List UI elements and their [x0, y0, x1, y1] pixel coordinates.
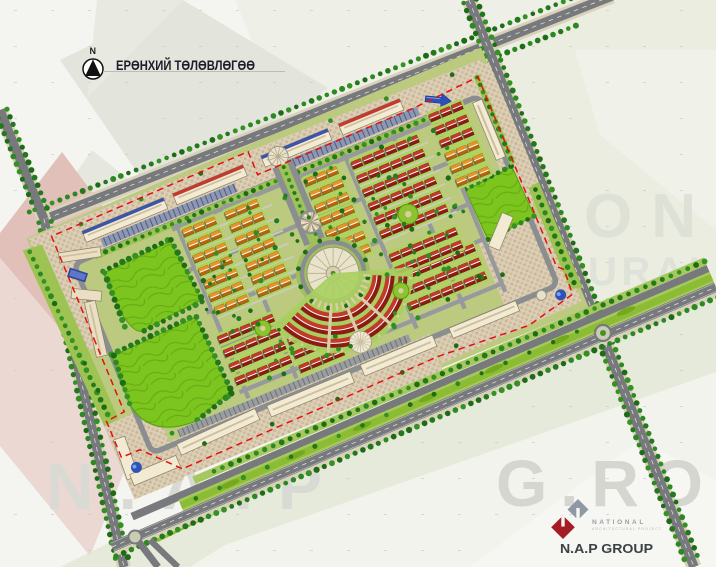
svg-text:ARCHITECTURAL PROJECT: ARCHITECTURAL PROJECT — [592, 527, 662, 531]
svg-text:NATIONAL: NATIONAL — [592, 519, 646, 526]
svg-text:N: N — [90, 46, 97, 56]
svg-text:ON: ON — [584, 182, 716, 251]
svg-text:ЕРӨНХИЙ ТӨЛӨВЛӨГӨӨ: ЕРӨНХИЙ ТӨЛӨВЛӨГӨӨ — [116, 56, 255, 73]
svg-text:G.RO: G.RO — [496, 446, 716, 520]
svg-text:N.A.P GROUP: N.A.P GROUP — [560, 542, 653, 556]
